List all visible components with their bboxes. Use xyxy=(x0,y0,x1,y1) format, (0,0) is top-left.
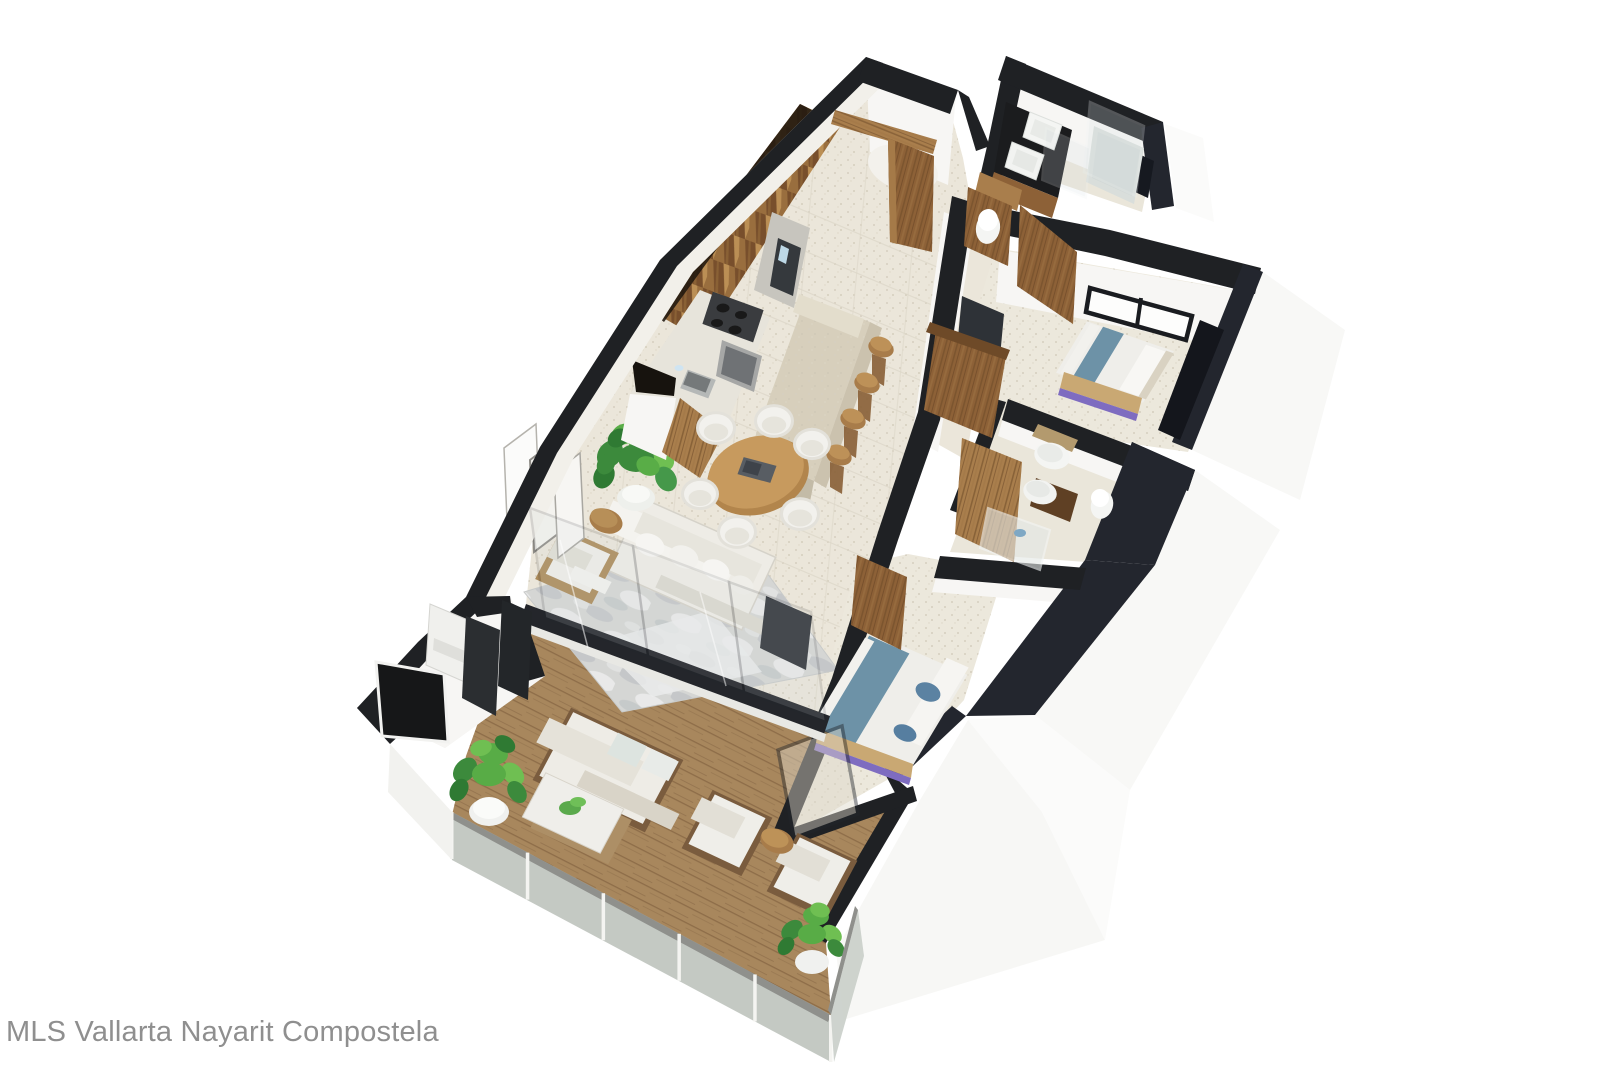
svg-text:MLS Vallarta Nayarit Compostel: MLS Vallarta Nayarit Compostela xyxy=(6,1016,439,1048)
